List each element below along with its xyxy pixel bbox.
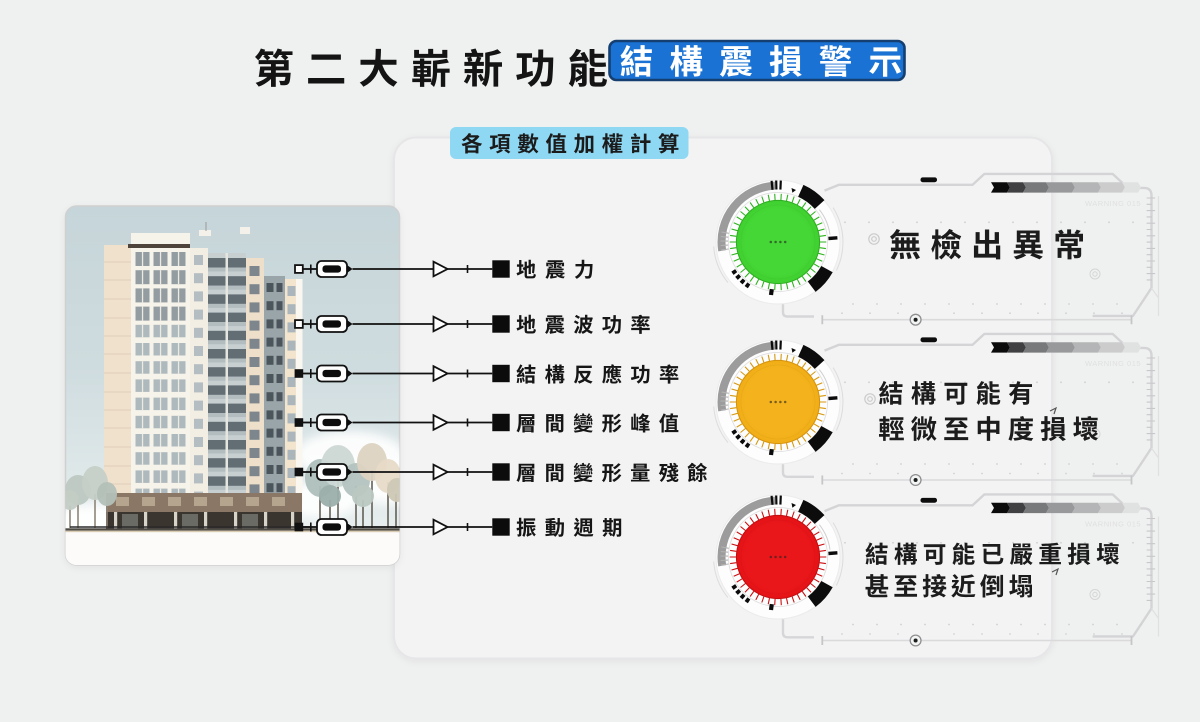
svg-text:WARNING 015: WARNING 015 bbox=[1085, 199, 1141, 208]
svg-text:WARNING 015: WARNING 015 bbox=[1085, 359, 1141, 368]
svg-text:WARNING 015: WARNING 015 bbox=[1085, 520, 1141, 529]
